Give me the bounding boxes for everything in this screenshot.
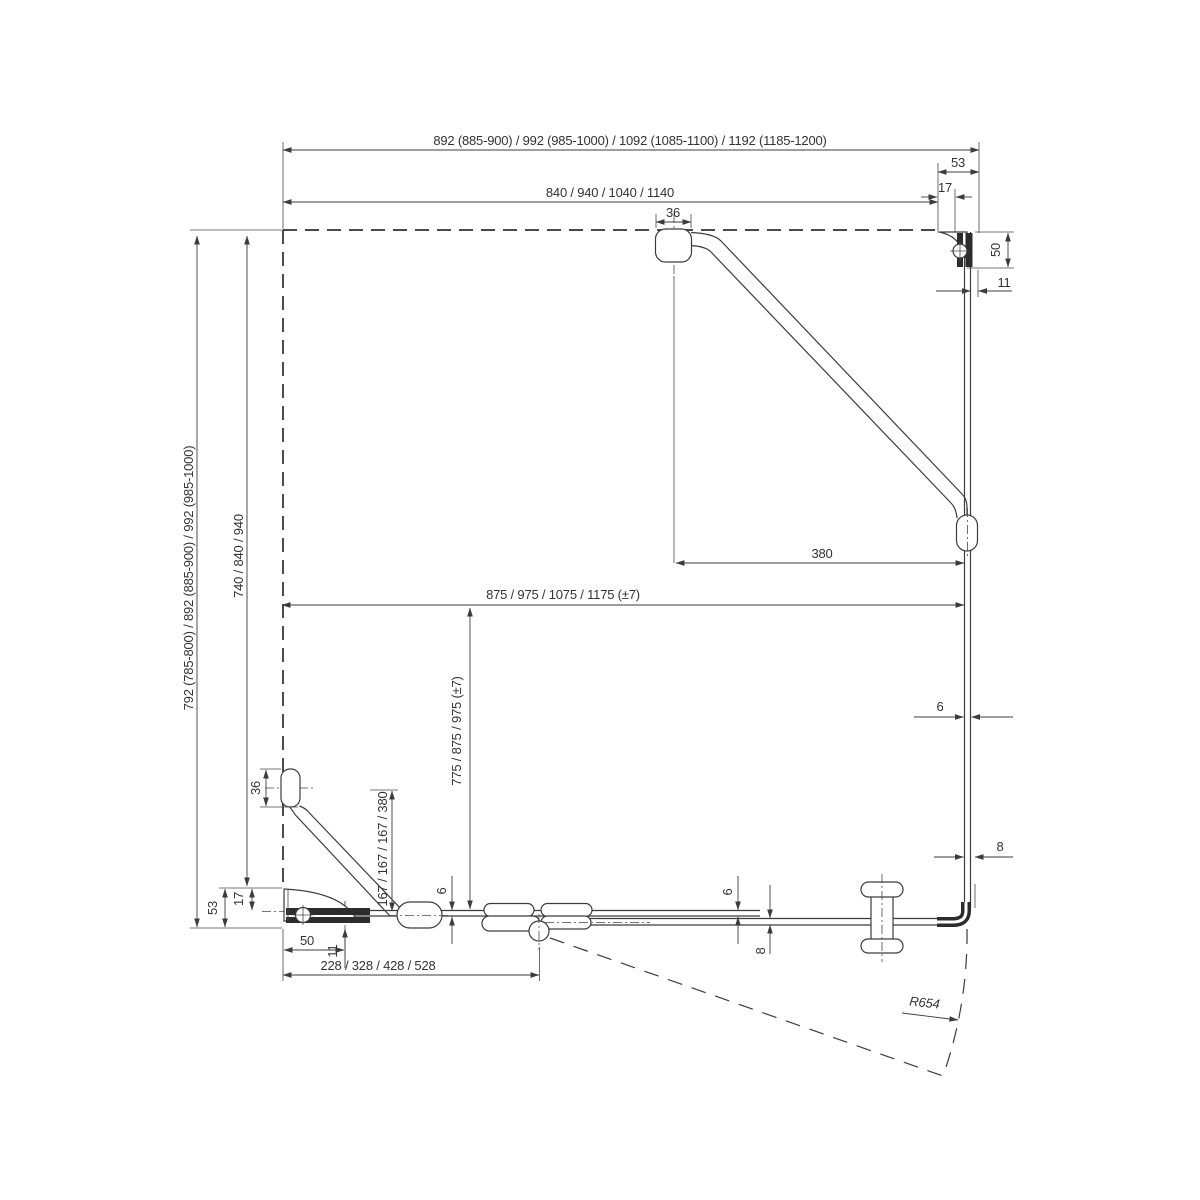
corner-bracket-top-right bbox=[939, 232, 973, 267]
shower-enclosure-plan-drawing: 892 (885-900) / 992 (985-1000) / 1092 (1… bbox=[0, 0, 1200, 1200]
dim-right-glass-offset: 11 bbox=[997, 275, 1010, 290]
dim-fixed-thickness-b: 6 bbox=[720, 888, 735, 895]
dim-hinge-offset: 228 / 328 / 428 / 528 bbox=[320, 958, 435, 973]
dim-fixed-thickness-a: 6 bbox=[434, 887, 449, 894]
strut-wall-bracket-left bbox=[281, 769, 300, 807]
dim-glass-depth-total: 775 / 875 / 975 (±7) bbox=[449, 676, 464, 785]
dim-left-strut-drop: 167 / 167 / 167 / 380 bbox=[375, 791, 390, 906]
dim-bottom-glass-offset: 11 bbox=[325, 944, 340, 957]
extension-lines bbox=[190, 142, 1014, 981]
strut-wall-bracket-top bbox=[656, 229, 692, 262]
dim-strut-span: 380 bbox=[811, 546, 832, 561]
dim-top-width-inner: 840 / 940 / 1040 / 1140 bbox=[546, 185, 674, 200]
dim-side-door-thickness: 8 bbox=[996, 839, 1003, 854]
dimension-lines bbox=[197, 150, 1013, 975]
dim-side-thickness: 6 bbox=[936, 699, 943, 714]
dim-bottom-bracket-height: 53 bbox=[205, 901, 220, 915]
technical-drawing-page: 892 (885-900) / 992 (985-1000) / 1092 (1… bbox=[0, 0, 1200, 1200]
dim-door-thickness: 8 bbox=[753, 947, 768, 954]
dim-left-height-inner: 740 / 840 / 940 bbox=[231, 514, 246, 598]
dim-bottom-bracket-width: 50 bbox=[300, 933, 314, 948]
dim-top-bracket-inset: 17 bbox=[938, 180, 952, 195]
dimension-labels: 892 (885-900) / 992 (985-1000) / 1092 (1… bbox=[181, 133, 1011, 1012]
support-strut-top bbox=[691, 233, 967, 519]
dim-door-swing-radius: R654 bbox=[909, 993, 941, 1011]
wall-lines bbox=[283, 230, 938, 888]
dim-left-strut-mount: 36 bbox=[248, 781, 263, 795]
corner-elbow-bottom-right bbox=[937, 902, 966, 922]
center-lines bbox=[262, 214, 674, 912]
dim-top-width-overall: 892 (885-900) / 992 (985-1000) / 1092 (1… bbox=[433, 133, 826, 148]
side-panel-glass bbox=[965, 232, 971, 908]
corner-bracket-bottom-left bbox=[284, 889, 370, 925]
dim-top-strut-mount: 36 bbox=[666, 205, 680, 220]
dim-bottom-bracket-inset: 17 bbox=[231, 892, 246, 906]
dim-top-bracket-width: 53 bbox=[951, 155, 965, 170]
dim-glass-width-total: 875 / 975 / 1075 / 1175 (±7) bbox=[486, 587, 640, 602]
strut-clamp-side bbox=[957, 508, 978, 558]
dim-right-bracket-height: 50 bbox=[988, 243, 1003, 257]
dim-left-height-overall: 792 (785-800) / 892 (885-900) / 992 (985… bbox=[181, 446, 196, 711]
